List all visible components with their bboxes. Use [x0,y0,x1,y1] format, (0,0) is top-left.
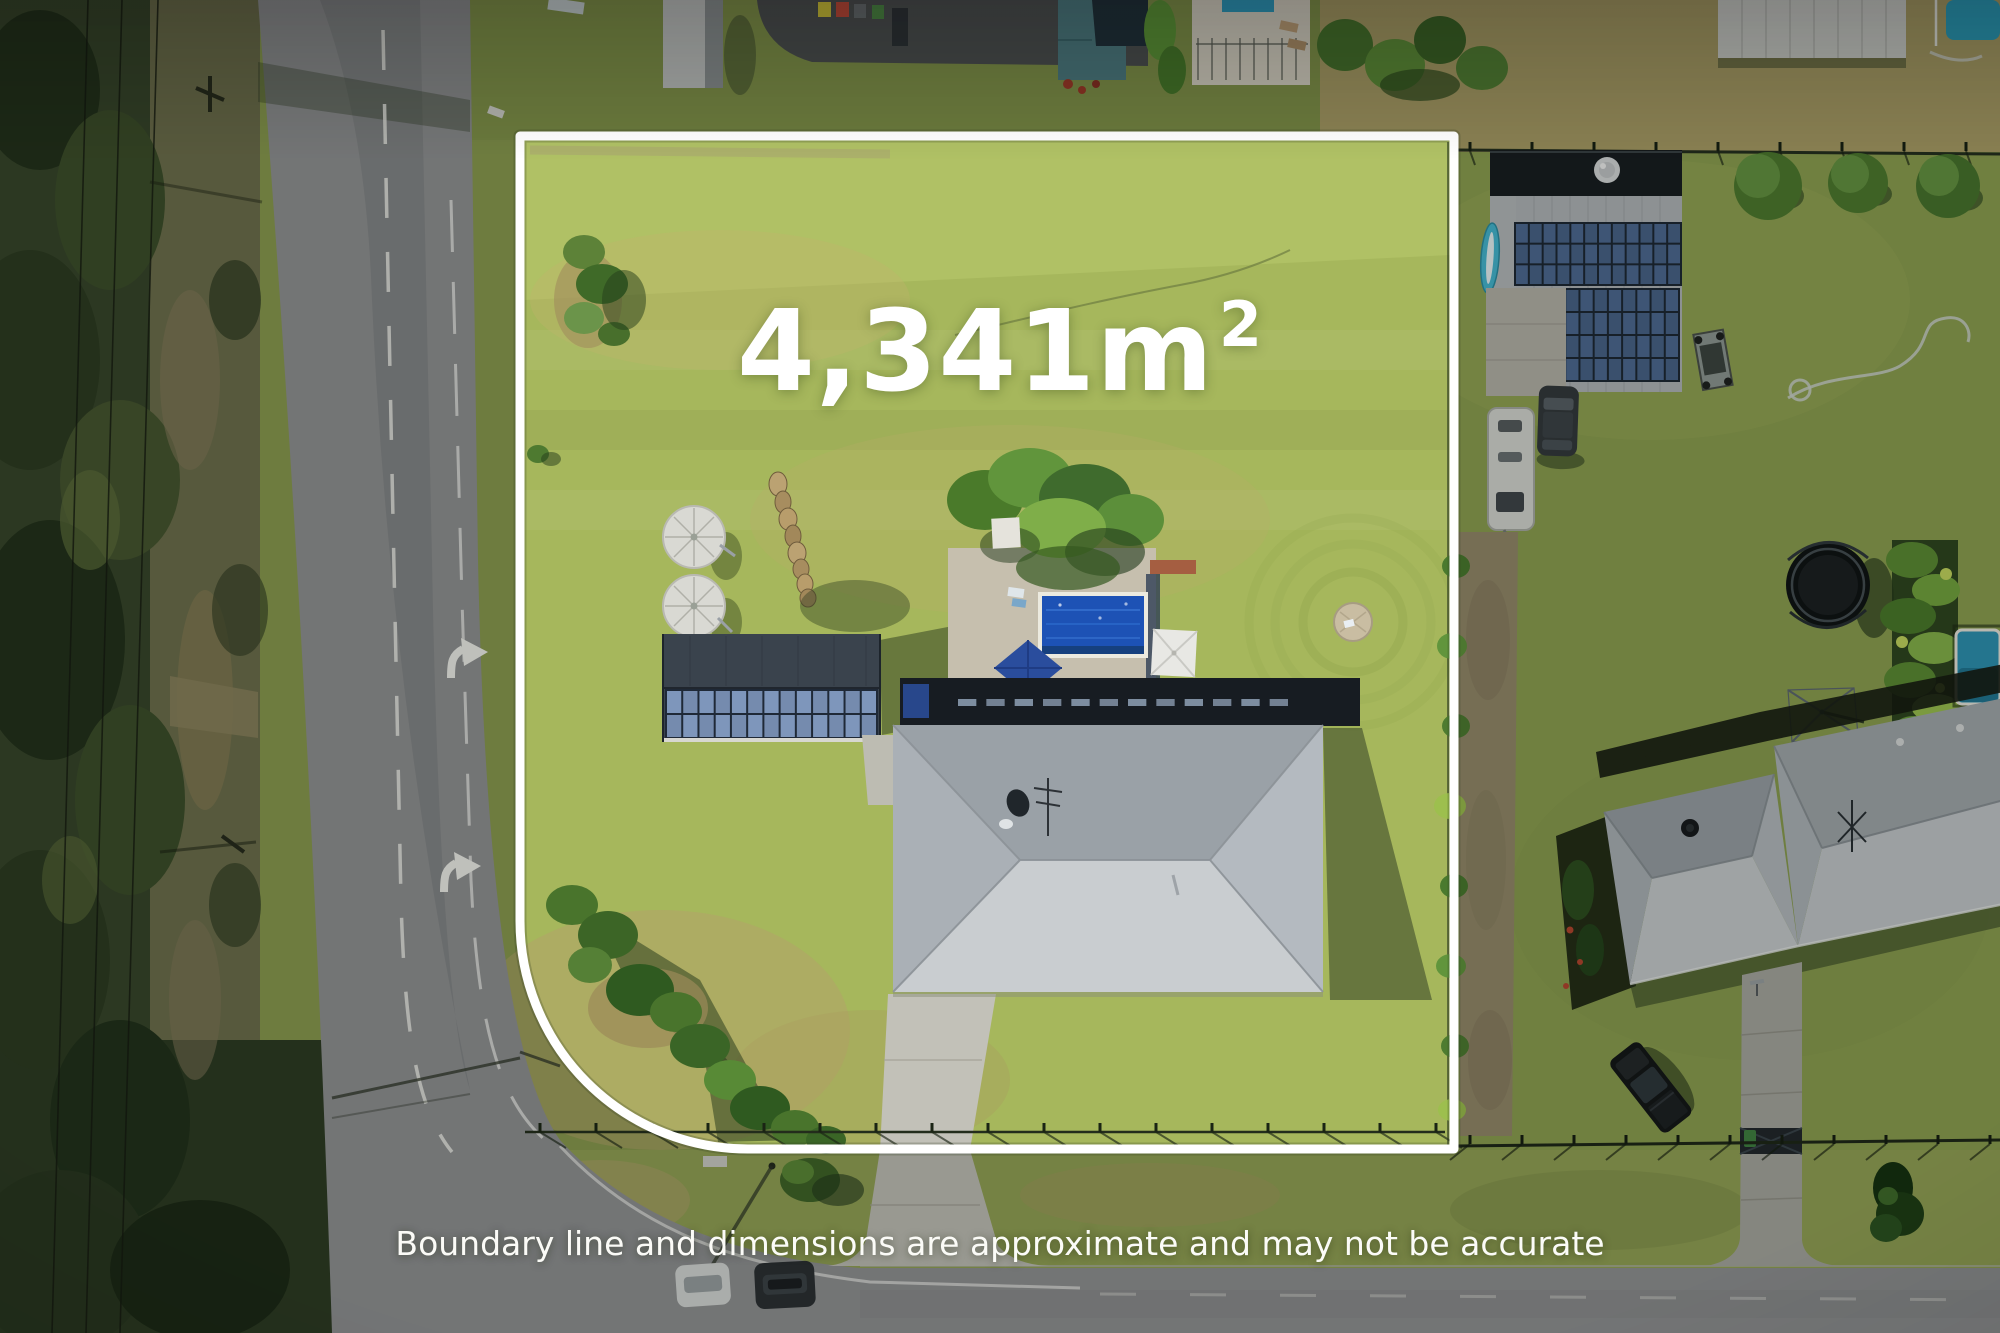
lot-area-superscript: 2 [1219,294,1263,356]
lot-area-value: 4,341m [737,296,1214,408]
shed-solar [663,634,880,742]
main-house-roof [893,725,1323,997]
aerial-scene [0,0,2000,1333]
white-umbrella [1151,629,1197,677]
aerial-property-photo: 4,341m2 Boundary line and dimensions are… [0,0,2000,1333]
swimming-pool [1040,594,1146,656]
boundary-disclaimer: Boundary line and dimensions are approxi… [395,1224,1604,1263]
pergola [991,517,1021,548]
patio-shade-band [900,678,1360,726]
lot-area-label: 4,341m2 [737,296,1263,408]
fire-pit [1334,603,1372,641]
